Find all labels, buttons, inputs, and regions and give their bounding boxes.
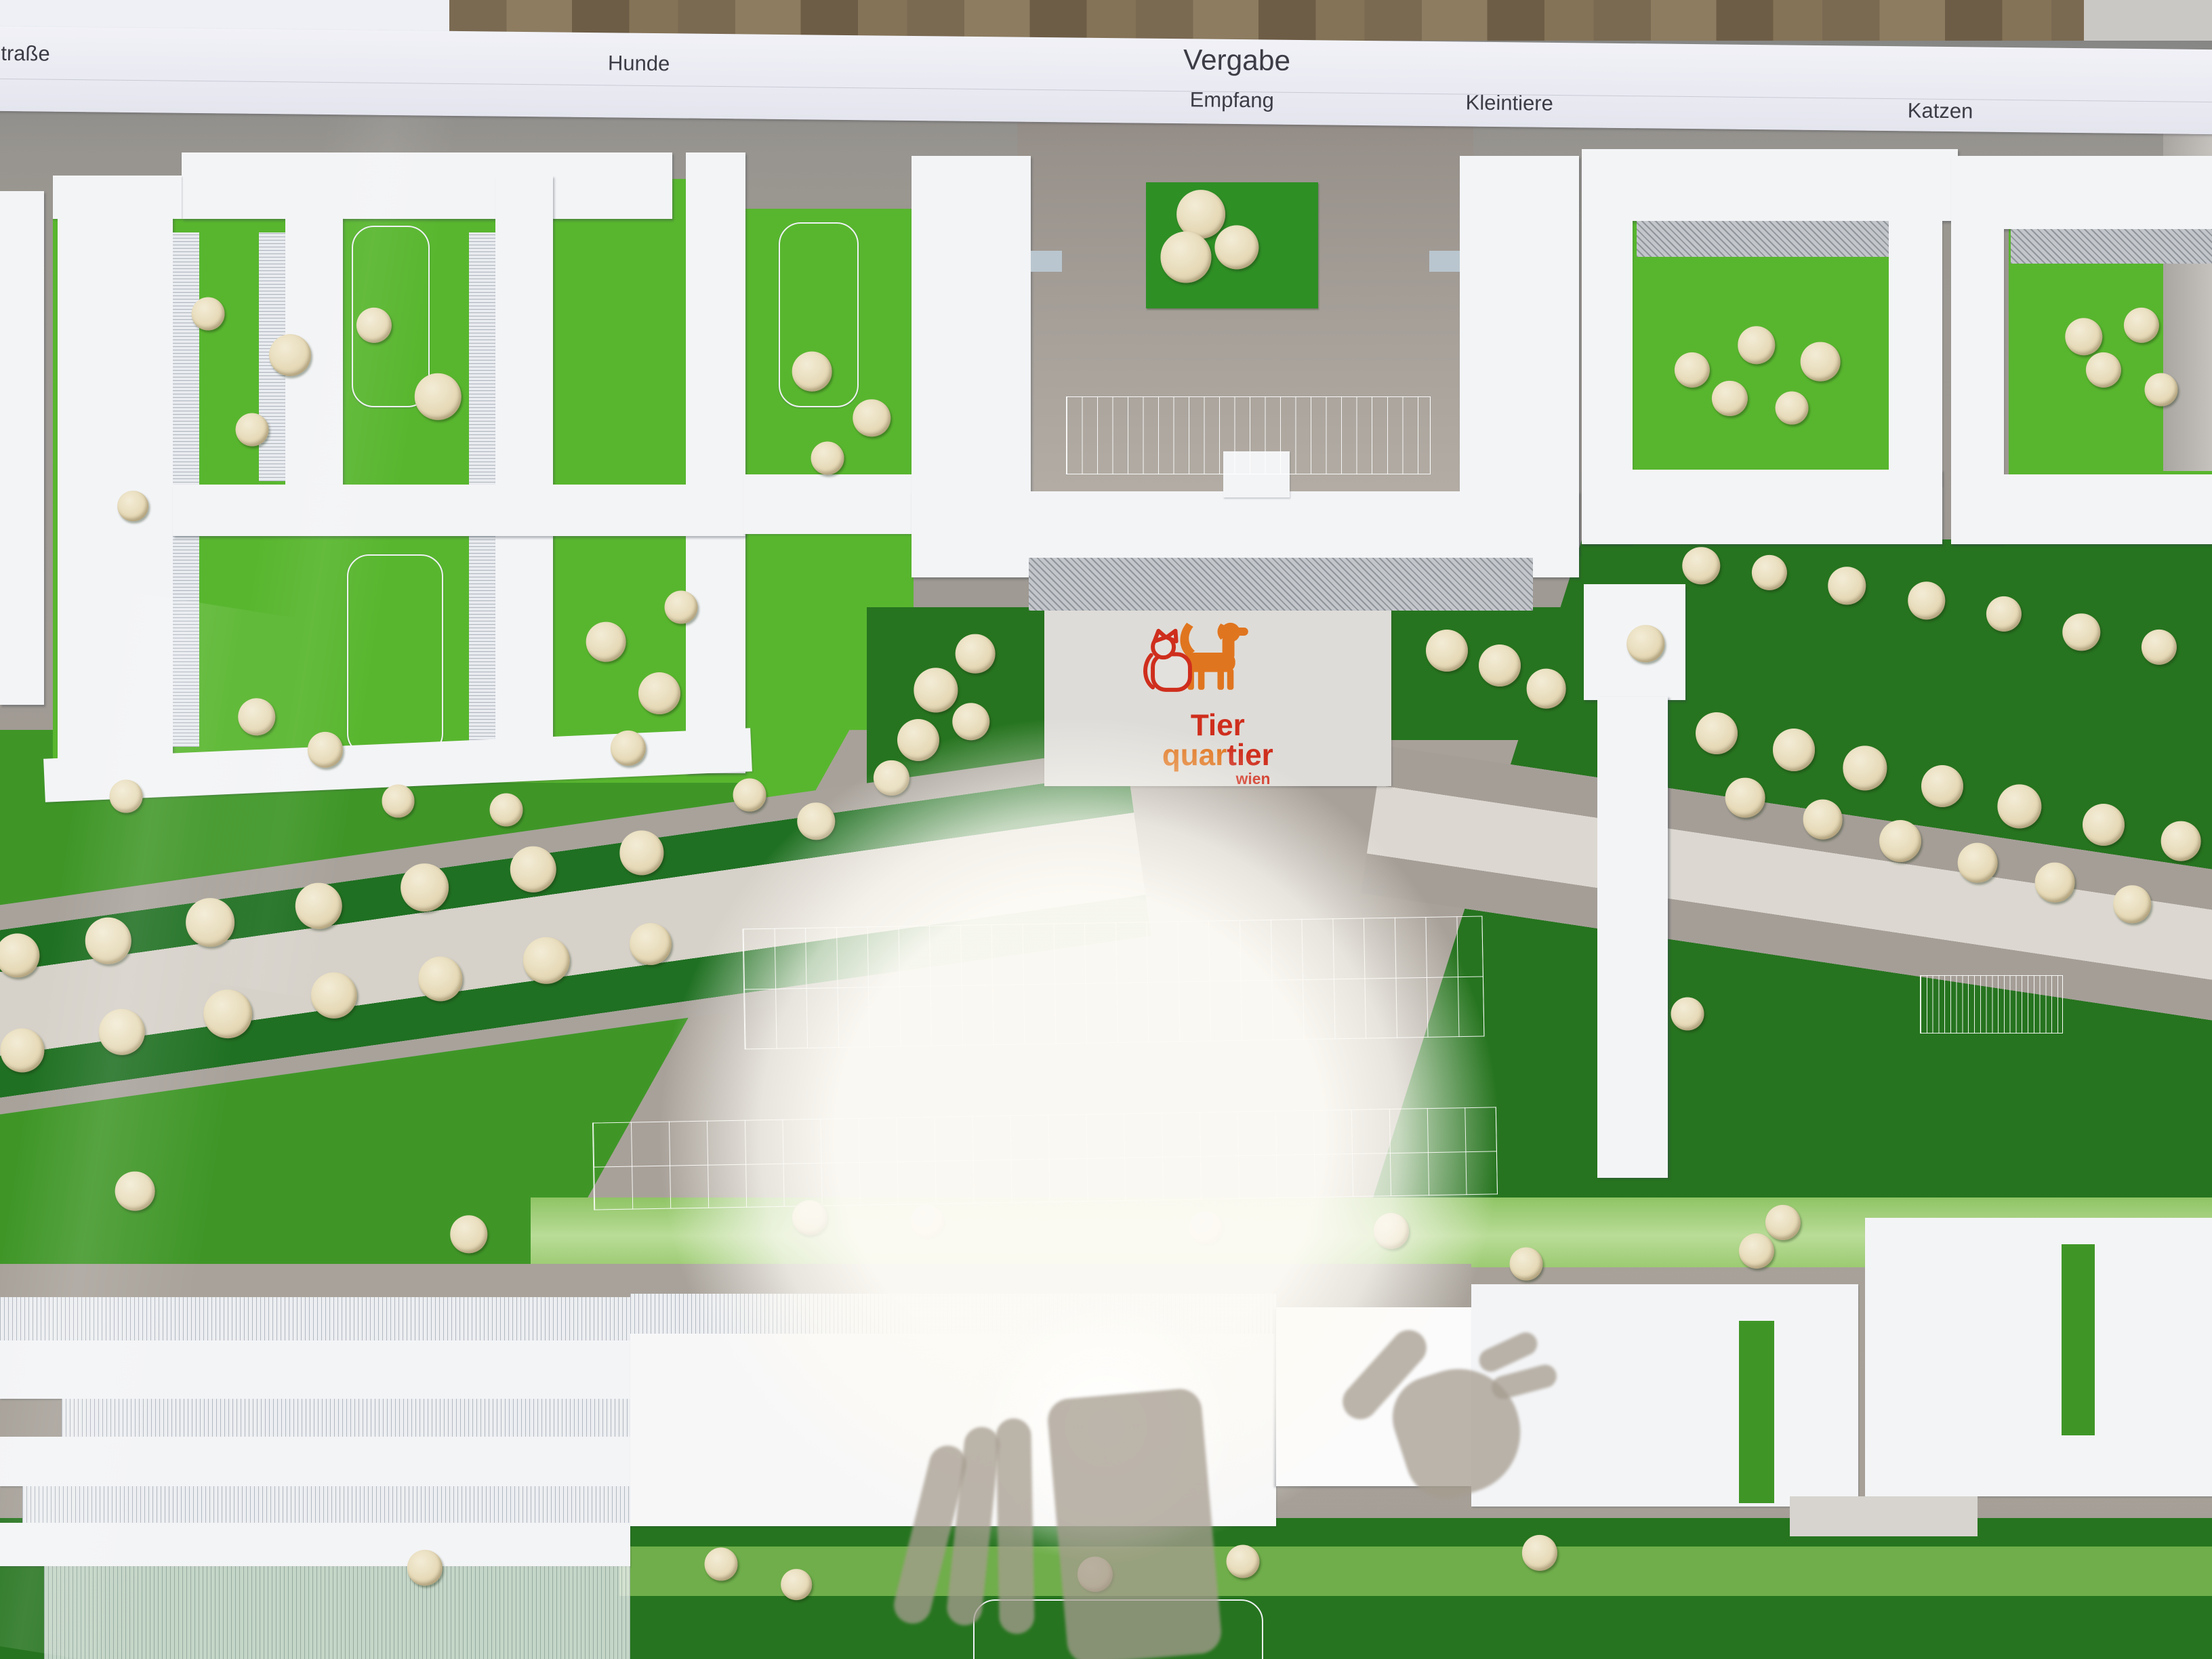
tree	[308, 732, 343, 767]
tree	[382, 785, 415, 818]
tree	[1739, 1233, 1774, 1269]
tree	[1725, 778, 1765, 818]
hunde-cross-slab	[173, 485, 745, 536]
south-slab	[0, 1437, 630, 1486]
tree	[611, 731, 646, 766]
tierquartier-logo	[1120, 611, 1315, 716]
tree	[415, 373, 462, 420]
plate-gap	[1739, 1321, 1774, 1503]
tree	[1997, 784, 2041, 828]
tree	[630, 923, 672, 965]
kleintiere-top-slab	[1582, 149, 1958, 220]
label-hunde: Hunde	[608, 52, 670, 77]
tree	[1803, 800, 1843, 840]
south-east-plate	[1471, 1284, 1858, 1507]
tree	[1160, 232, 1211, 283]
katzen-roof-hatch	[2011, 229, 2212, 264]
south-ribbed-row	[44, 1566, 630, 1659]
tree	[1958, 843, 1998, 883]
tree	[2144, 373, 2177, 407]
tree	[401, 863, 449, 912]
tree	[523, 937, 570, 984]
hunde-edge-slab	[0, 191, 44, 705]
tree	[1986, 596, 2022, 632]
label-katzen: Katzen	[1908, 99, 1973, 124]
tree	[1765, 1205, 1801, 1240]
south-far-east-plate	[1865, 1218, 2212, 1496]
tree	[1843, 746, 1887, 790]
tree	[2142, 630, 2177, 665]
tree	[98, 1008, 145, 1055]
kleintiere-east-wing	[1889, 221, 1942, 487]
tree	[191, 297, 224, 330]
tree	[2123, 308, 2158, 343]
tree	[1921, 765, 1963, 807]
tree	[85, 918, 132, 964]
tree	[1426, 630, 1468, 672]
tree	[1773, 729, 1815, 771]
tree	[1522, 1535, 1557, 1570]
tree	[295, 882, 342, 929]
tree	[203, 989, 252, 1038]
tree	[792, 352, 832, 392]
tree	[490, 793, 523, 826]
spine-wall	[1597, 697, 1668, 1178]
katzen-south-slab	[1951, 474, 2212, 544]
tree	[956, 634, 996, 674]
tree	[665, 590, 698, 623]
tree	[510, 846, 556, 893]
tree	[2086, 352, 2121, 388]
tree	[0, 1028, 44, 1072]
tree	[236, 413, 269, 447]
parking-lot-east	[1920, 975, 2063, 1033]
kleintiere-roof-hatch	[1637, 221, 1889, 258]
katzen-top-slab	[1951, 156, 2212, 229]
wall-corner	[2084, 0, 2212, 41]
tree	[811, 441, 844, 474]
tree	[781, 1569, 812, 1600]
tree	[2083, 804, 2125, 846]
tree	[1879, 820, 1921, 862]
tree	[1479, 644, 1521, 687]
tree	[1801, 342, 1841, 382]
south-slab	[0, 1523, 630, 1566]
south-slab	[0, 1340, 630, 1399]
hunde-top-slab	[182, 152, 673, 219]
tree	[2035, 863, 2075, 903]
tree	[269, 334, 311, 376]
tree	[1176, 190, 1225, 239]
label-vergabe: Vergabe	[1183, 44, 1291, 78]
hunde-top-left-slab	[53, 176, 181, 219]
hunde-wing-d	[686, 152, 745, 773]
south-ribbed-row	[62, 1399, 630, 1437]
tree	[1775, 392, 1808, 425]
tree	[705, 1548, 738, 1581]
forecourt-parking	[1066, 396, 1430, 474]
tree	[407, 1550, 443, 1585]
tree	[186, 898, 234, 947]
south-green-light-band	[619, 1547, 2212, 1596]
south-ribbed-row	[0, 1297, 630, 1340]
tree	[2161, 821, 2201, 861]
tree	[1214, 225, 1258, 269]
tree	[1526, 669, 1566, 709]
tree	[110, 780, 143, 813]
tree	[1675, 352, 1710, 388]
south-ribbed-row	[22, 1486, 631, 1523]
tree	[619, 831, 663, 875]
tree	[117, 491, 148, 522]
south-east-ledge	[1790, 1496, 1978, 1536]
tree	[418, 957, 462, 1001]
wing-corner-accent	[1429, 251, 1460, 272]
tree	[733, 778, 766, 811]
finger-silhouette	[996, 1418, 1035, 1635]
tree	[586, 622, 626, 662]
tree	[1752, 554, 1787, 590]
dog-run-pen	[347, 554, 443, 756]
tree	[914, 668, 958, 712]
tierquartier-site-model-photo: Tier quartier wien	[0, 0, 2212, 1659]
tree	[1712, 380, 1747, 415]
hunde-wing-a	[58, 218, 173, 765]
tree	[311, 972, 358, 1019]
tree	[115, 1171, 155, 1211]
label-strip: Straße Hunde Vergabe Empfang Kleintiere …	[0, 26, 2212, 135]
mid-yard-slab	[743, 474, 914, 534]
plate-gap	[2062, 1244, 2095, 1435]
kleintiere-south-slab	[1582, 470, 1942, 544]
tree	[356, 308, 392, 343]
wing-corner-accent	[1031, 251, 1062, 272]
tree	[1671, 997, 1704, 1030]
tree	[1510, 1248, 1543, 1281]
label-kleintiere: Kleintiere	[1466, 91, 1554, 116]
phone-silhouette	[1046, 1387, 1224, 1659]
hunde-wing-c	[495, 176, 553, 773]
label-strasse: Straße	[0, 41, 50, 66]
roof-skylights	[1029, 558, 1533, 611]
label-empfang: Empfang	[1190, 88, 1274, 113]
tree	[638, 672, 680, 714]
tree	[1696, 712, 1738, 754]
